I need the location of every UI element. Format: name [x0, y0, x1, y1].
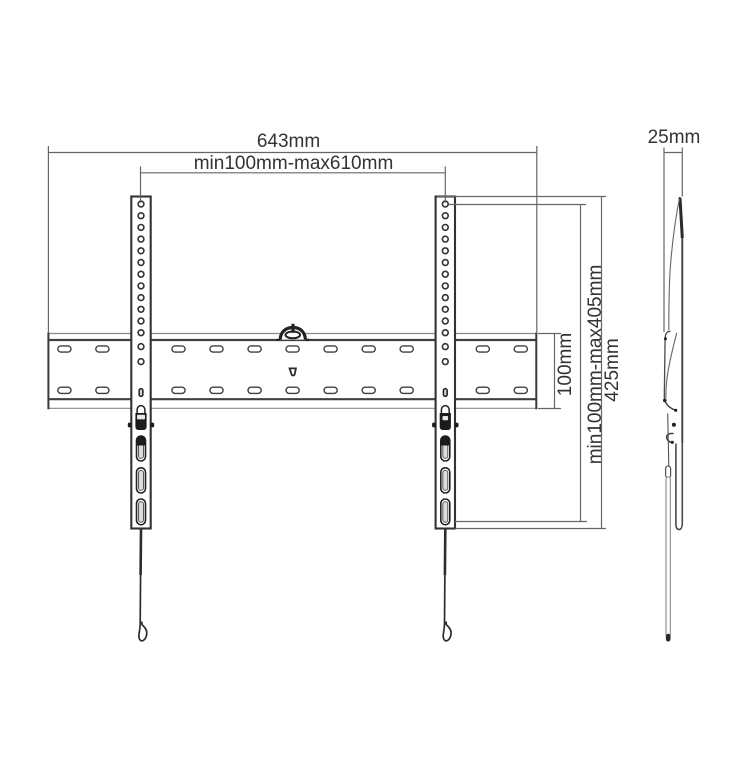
svg-text:25mm: 25mm	[648, 127, 701, 148]
svg-text:100mm: 100mm	[555, 333, 576, 396]
svg-text:643mm: 643mm	[257, 131, 320, 152]
svg-text:min100mm-max610mm: min100mm-max610mm	[194, 153, 394, 174]
svg-text:425mm: 425mm	[602, 338, 623, 401]
